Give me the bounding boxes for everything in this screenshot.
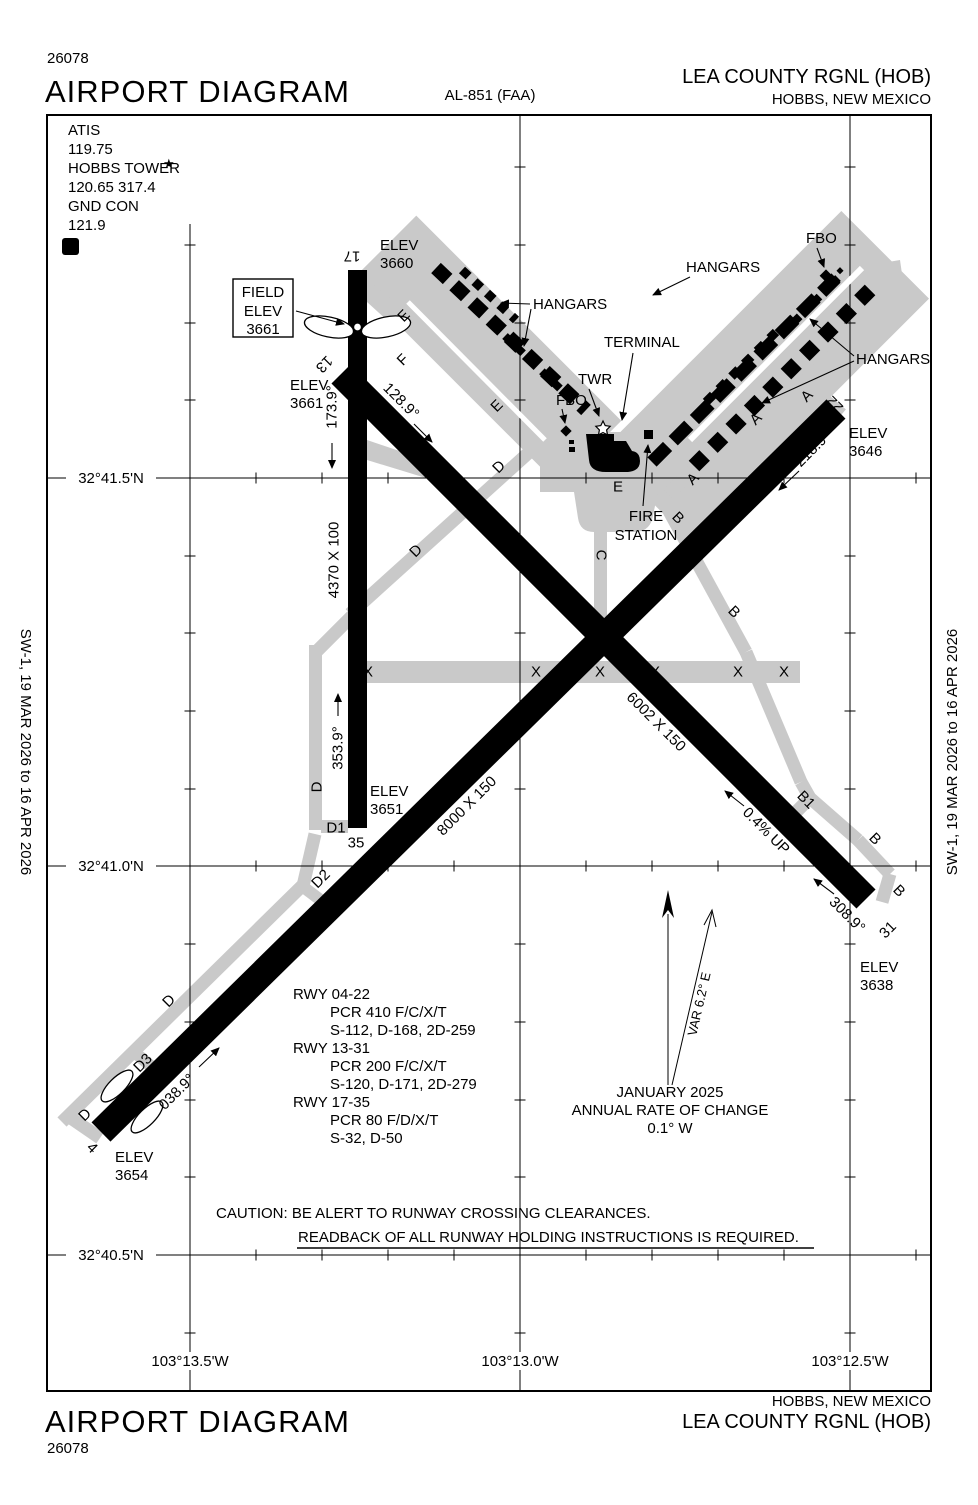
field-elev-line2: ELEV (244, 303, 282, 320)
page-title-bottom: AIRPORT DIAGRAM (45, 1404, 350, 1439)
elev-value-rwy13: 3661 (290, 395, 323, 412)
variation-rate-label: ANNUAL RATE OF CHANGE (572, 1102, 769, 1119)
taxiways-aprons (62, 211, 929, 1138)
hangars-nw-arrow (501, 303, 530, 304)
closed-taxiway-x: X (779, 664, 789, 681)
runway-data-strengths: S-112, D-168, 2D-259 (330, 1022, 476, 1039)
closed-taxiway-x: X (733, 664, 743, 681)
closed-taxiway-x: X (363, 664, 373, 681)
longitude-label-1: 103°13.5'W (151, 1353, 229, 1370)
runway-data-strengths: S-120, D-171, 2D-279 (330, 1076, 477, 1093)
latitude-label-1: 32°41.5'N (78, 470, 144, 487)
taxiway-d-vertical (309, 645, 322, 830)
runway-number-13: 13 (312, 352, 336, 376)
longitude-label-2: 103°13.0'W (481, 1353, 559, 1370)
edition-text-right: SW-1, 19 MAR 2026 to 16 APR 2026 (944, 629, 961, 876)
latitude-label-3: 32°40.5'N (78, 1247, 144, 1264)
longitude-label-3: 103°12.5'W (811, 1353, 889, 1370)
small-building (569, 447, 575, 452)
footer: HOBBS, NEW MEXICO LEA COUNTY RGNL (HOB) … (45, 1393, 931, 1457)
runway-number-31: 31 (876, 918, 900, 942)
elev-label-rwy4: ELEV (115, 1149, 153, 1166)
taxiway-label-d1: D1 (326, 820, 345, 837)
terminal-arrow (622, 353, 633, 420)
taxiway-label-c: C (593, 550, 610, 561)
ground-frequency: 121.9 (68, 217, 106, 234)
atis-frequency: 119.75 (68, 141, 113, 158)
closed-taxiway-x: X (595, 664, 605, 681)
tower-frequencies: 120.65 317.4 (68, 179, 156, 196)
airport-diagram-chart: 26078 AIRPORT DIAGRAM AL-851 (FAA) LEA C… (0, 0, 978, 1500)
small-building (569, 440, 574, 444)
city-state-bottom: HOBBS, NEW MEXICO (772, 1393, 931, 1410)
runway-data-row: RWY 13-31 (293, 1040, 370, 1057)
airport-diagram-page: 26078 AIRPORT DIAGRAM AL-851 (FAA) LEA C… (0, 0, 978, 1500)
boxed-d-letter: D (66, 240, 75, 255)
variation-block: VAR 6.2° E JANUARY 2025 ANNUAL RATE OF C… (572, 890, 769, 1137)
heading-353: 353.9° (330, 726, 347, 770)
caution-note: CAUTION: BE ALERT TO RUNWAY CROSSING CLE… (216, 1205, 814, 1248)
page-title: AIRPORT DIAGRAM (45, 74, 350, 109)
airport-name-bottom: LEA COUNTY RGNL (HOB) (682, 1411, 931, 1433)
fire-station-label-1: FIRE (629, 508, 663, 525)
caution-line-1: CAUTION: BE ALERT TO RUNWAY CROSSING CLE… (216, 1205, 651, 1222)
taxiway-b (882, 874, 890, 902)
elev-value-rwy31: 3638 (860, 977, 893, 994)
chart-number-top: 26078 (47, 50, 89, 67)
chart-number-bottom: 26078 (47, 1440, 89, 1457)
terminal-label: TERMINAL (604, 334, 680, 351)
caution-line-2: READBACK OF ALL RUNWAY HOLDING INSTRUCTI… (298, 1229, 799, 1246)
hangars-label-nw: HANGARS (533, 296, 607, 313)
dimension-rwy-17-35: 4370 X 100 (326, 522, 343, 599)
variation-rate-value: 0.1° W (647, 1120, 693, 1137)
fbo-label-east: FBO (806, 230, 837, 247)
elev-label-rwy17: ELEV (380, 237, 418, 254)
hangars-ne-top-arrow (653, 277, 690, 295)
taxiway-label-d: D (309, 781, 326, 792)
comm-frequencies: ATIS 119.75 HOBBS TOWER ★ 120.65 317.4 G… (62, 122, 180, 255)
latitude-label-2: 32°41.0'N (78, 858, 144, 875)
hangars-label-ne-right: HANGARS (856, 351, 930, 368)
elev-value-rwy35: 3651 (370, 801, 403, 818)
closed-taxiway-x: X (650, 664, 660, 681)
fire-station-label-2: STATION (615, 527, 678, 544)
runway-17-35 (348, 270, 367, 828)
field-elevation-dot (354, 323, 362, 331)
tower-label-map: TWR (578, 371, 612, 388)
runway-number-35: 35 (348, 835, 365, 852)
taxiway-label-e: E (613, 479, 623, 496)
tower-star-icon: ★ (163, 156, 175, 171)
closed-taxiway-x: X (531, 664, 541, 681)
gradient-arrow (725, 791, 744, 806)
edition-text-left: SW-1, 19 MAR 2026 to 16 APR 2026 (17, 629, 34, 876)
city-state-top: HOBBS, NEW MEXICO (772, 91, 931, 108)
variation-date: JANUARY 2025 (616, 1084, 723, 1101)
elev-value-rwy4: 3654 (115, 1167, 148, 1184)
fire-station-building (644, 430, 653, 439)
elev-label-rwy22: ELEV (849, 425, 887, 442)
header: 26078 AIRPORT DIAGRAM AL-851 (FAA) LEA C… (45, 50, 931, 109)
runway-data-row: RWY 04-22 (293, 986, 370, 1003)
runway-data-block: RWY 04-22 PCR 410 F/C/X/T S-112, D-168, … (293, 986, 477, 1147)
runway-data-strengths: S-32, D-50 (330, 1130, 403, 1147)
ground-label: GND CON (68, 198, 139, 215)
elev-label-rwy35: ELEV (370, 783, 408, 800)
runway-number-17: 17 (344, 248, 361, 265)
field-elev-line1: FIELD (242, 284, 285, 301)
airport-name-top: LEA COUNTY RGNL (HOB) (682, 66, 931, 88)
segmented-circle-left (302, 312, 355, 342)
hangars-label-ne-top: HANGARS (686, 259, 760, 276)
field-elev-line3: 3661 (246, 321, 279, 338)
variation-value: VAR 6.2° E (684, 970, 713, 1037)
fbo-label-west: FBO (556, 392, 587, 409)
elev-value-rwy17: 3660 (380, 255, 413, 272)
true-north-arrowhead (662, 890, 674, 918)
runway-number-4: 4 (83, 1139, 101, 1157)
elev-label-rwy13: ELEV (290, 377, 328, 394)
taxiway-label-f: F (394, 351, 413, 370)
runway-data-row: RWY 17-35 (293, 1094, 370, 1111)
atis-label: ATIS (68, 122, 100, 139)
elev-value-rwy22: 3646 (849, 443, 882, 460)
runway-data-pcr: PCR 200 F/C/X/T (330, 1058, 447, 1075)
elev-label-rwy31: ELEV (860, 959, 898, 976)
runway-data-pcr: PCR 80 F/D/X/T (330, 1112, 438, 1129)
procedure-ref: AL-851 (FAA) (445, 87, 536, 104)
runway-data-pcr: PCR 410 F/C/X/T (330, 1004, 447, 1021)
